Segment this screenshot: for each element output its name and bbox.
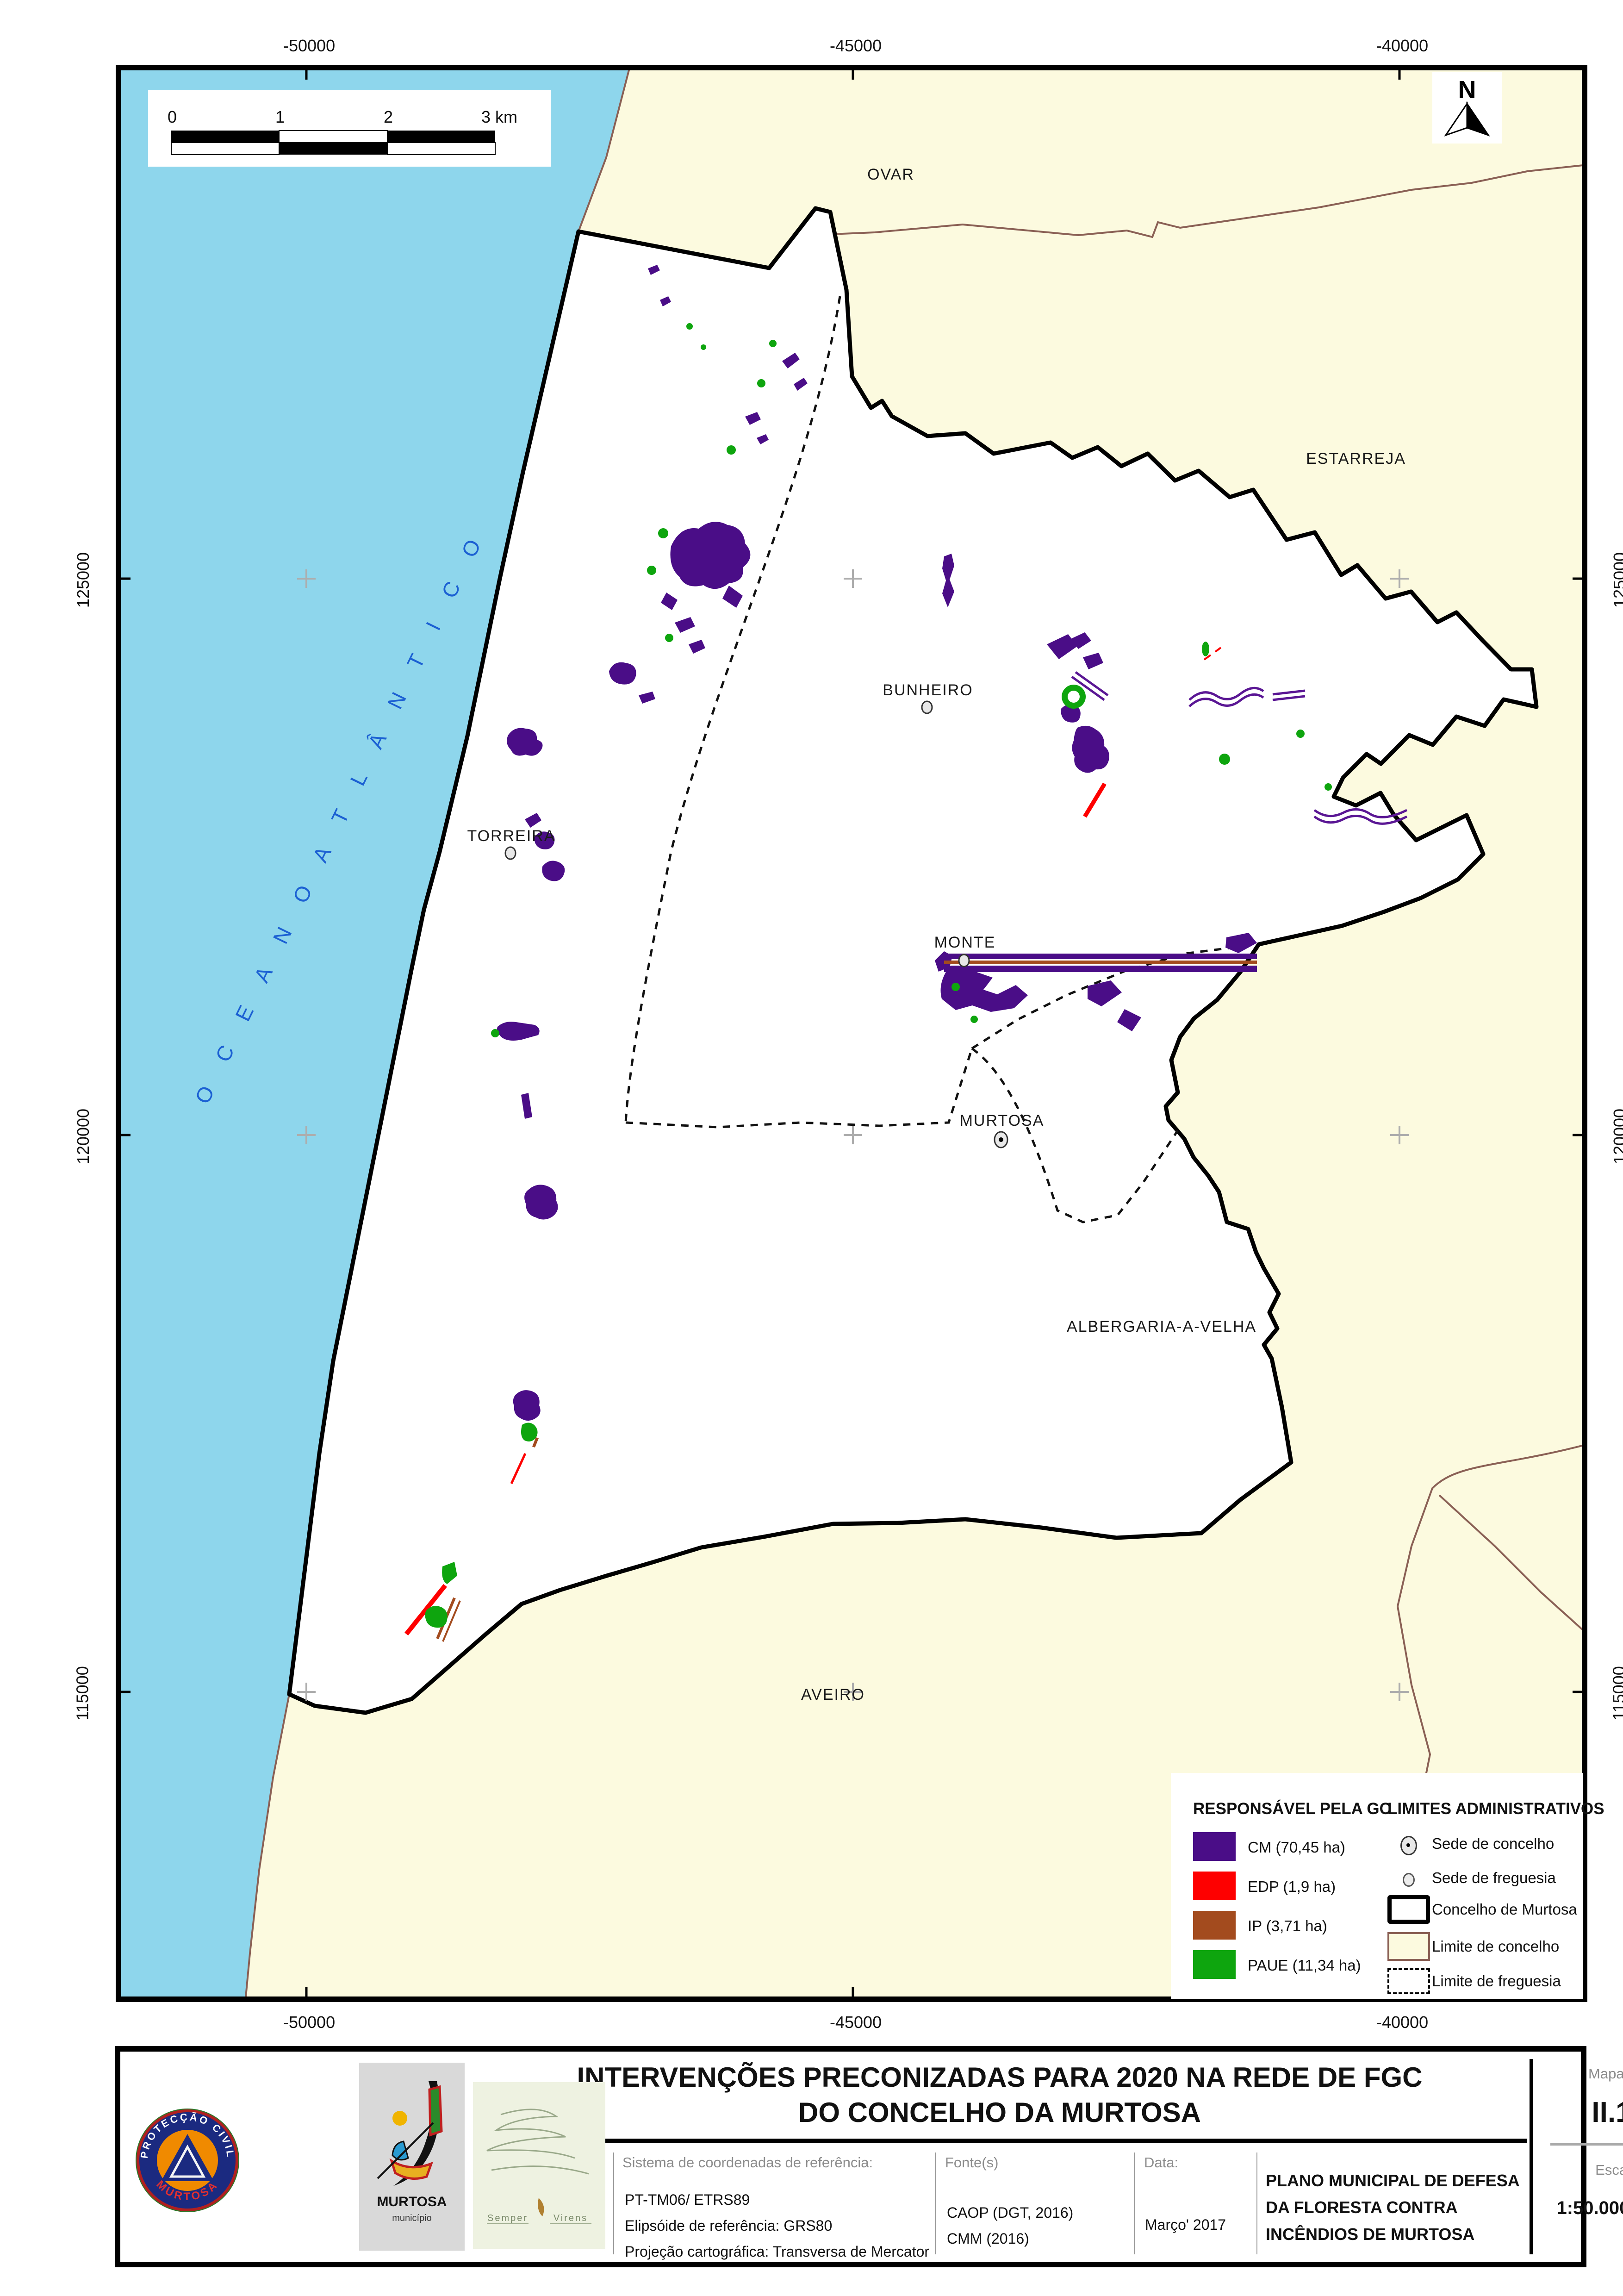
proteccao-civil-logo: PROTECÇÃO CIVIL MURTOSA (134, 2107, 241, 2214)
cm-swatch (1193, 1832, 1236, 1861)
escala-value: 1:50.000 (A3) (1536, 2198, 1623, 2219)
paue-label: PAUE (11,34 ha) (1248, 1957, 1361, 1974)
sede-freguesia-label: Sede de freguesia (1432, 1869, 1556, 1887)
map-title: INTERVENÇÕES PRECONIZADAS PARA 2020 NA R… (472, 2060, 1527, 2130)
sede-freguesia-icon (1403, 1873, 1415, 1887)
plano-municipal-text: PLANO MUNICIPAL DE DEFESA DA FLORESTA CO… (1266, 2167, 1525, 2248)
coord-left-3: 115000 (73, 1666, 93, 1720)
virens-text: Virens (553, 2213, 588, 2223)
coord-right-1: 125000 (1610, 552, 1623, 608)
title-divider (477, 2139, 1527, 2143)
murtosa-logo-name: MURTOSA (377, 2194, 447, 2209)
title-block: PROTECÇÃO CIVIL MURTOSA MURTOSA municípi… (115, 2046, 1586, 2267)
sistema-line1: PT-TM06/ ETRS89 (625, 2187, 750, 2213)
map-canvas: OVAR ESTARREJA BUNHEIRO TORREIRA MONTE M… (116, 65, 1587, 2002)
coord-right-3: 115000 (1610, 1666, 1623, 1720)
semper-text: Semper (487, 2213, 528, 2223)
right-column-rule (1550, 2143, 1623, 2146)
fontes-line1: CAOP (DGT, 2016) (947, 2200, 1073, 2226)
murtosa-municipio-logo: MURTOSA município (359, 2063, 465, 2251)
coord-right-2: 120000 (1610, 1109, 1623, 1164)
semper-virens-logo: Semper Virens (473, 2082, 605, 2249)
map-title-line1: INTERVENÇÕES PRECONIZADAS PARA 2020 NA R… (472, 2060, 1527, 2095)
label-albergaria: ALBERGARIA-A-VELHA (1067, 1318, 1256, 1335)
limite-concelho-icon (1387, 1932, 1430, 1961)
plano-line3: INCÊNDIOS DE MURTOSA (1266, 2221, 1525, 2248)
limite-freguesia-icon (1387, 1968, 1430, 1994)
murtosa-logo-sub: município (392, 2213, 432, 2223)
plano-line1: PLANO MUNICIPAL DE DEFESA (1266, 2167, 1525, 2194)
label-ovar: OVAR (867, 166, 914, 183)
edp-label: EDP (1,9 ha) (1248, 1878, 1336, 1896)
legend-panel: RESPONSÁVEL PELA GC LIMITES ADMINISTRATI… (1171, 1773, 1583, 1999)
right-column-divider (1530, 2059, 1533, 2254)
divider-1 (613, 2152, 614, 2254)
label-bunheiro: BUNHEIRO (883, 681, 973, 699)
scale-tick-3: 3 km (481, 107, 517, 126)
escala-label: Escala: (1536, 2162, 1623, 2178)
coord-top-1: -50000 (283, 36, 335, 56)
coord-bottom-2: -45000 (830, 2013, 882, 2032)
map-title-line2: DO CONCELHO DA MURTOSA (472, 2095, 1527, 2130)
divider-2 (935, 2152, 936, 2254)
label-estarreja: ESTARREJA (1306, 450, 1406, 468)
concelho-murtosa-label: Concelho de Murtosa (1432, 1901, 1577, 1918)
escala-ratio: 1:50.000 (1556, 2198, 1623, 2218)
scale-tick-2: 2 (384, 107, 393, 126)
coord-bottom-3: -40000 (1376, 2013, 1428, 2032)
mapa-num-value: II.11 (1536, 2096, 1623, 2129)
legend-gc-title: RESPONSÁVEL PELA GC (1193, 1800, 1391, 1818)
coord-left-2: 120000 (74, 1109, 93, 1164)
fontes-line2: CMM (2016) (947, 2226, 1029, 2252)
scale-bar: 0 1 2 3 km (148, 90, 551, 167)
label-aveiro: AVEIRO (801, 1686, 865, 1703)
label-monte: MONTE (934, 934, 996, 951)
scale-tick-0: 0 (168, 107, 177, 126)
sistema-label: Sistema de coordenadas de referência: (622, 2154, 873, 2171)
sede-freguesia-monte (959, 955, 969, 967)
label-murtosa: MURTOSA (960, 1112, 1045, 1129)
cm-label: CM (70,45 ha) (1248, 1839, 1345, 1856)
coord-top-2: -45000 (830, 36, 882, 56)
sistema-line2: Elipsóide de referência: GRS80 (625, 2213, 832, 2239)
paue-swatch (1193, 1950, 1236, 1979)
north-label: N (1458, 76, 1476, 104)
label-torreira: TORREIRA (467, 827, 555, 845)
sede-freguesia-torreira (505, 847, 516, 859)
edp-swatch (1193, 1872, 1236, 1900)
concelho-murtosa-icon (1387, 1895, 1430, 1924)
coord-top-3: -40000 (1376, 36, 1428, 56)
ip-swatch (1193, 1911, 1236, 1940)
divider-3 (1134, 2152, 1135, 2254)
ip-label: IP (3,71 ha) (1248, 1917, 1327, 1935)
sede-concelho-icon (1400, 1836, 1417, 1855)
coord-bottom-1: -50000 (283, 2013, 335, 2032)
sede-concelho-label: Sede de concelho (1432, 1835, 1554, 1853)
legend-admin-title: LIMITES ADMINISTRATIVOS (1387, 1800, 1604, 1818)
data-value: Março' 2017 (1145, 2212, 1226, 2238)
fontes-label: Fonte(s) (945, 2154, 998, 2171)
sistema-line3: Projeção cartográfica: Transversa de Mer… (625, 2239, 929, 2265)
mapa-num-label: Mapa n.º: (1536, 2065, 1623, 2082)
divider-4 (1256, 2152, 1257, 2254)
data-label: Data: (1144, 2154, 1178, 2171)
limite-freguesia-label: Limite de freguesia (1432, 1972, 1561, 1990)
north-arrow: N (1432, 72, 1502, 143)
limite-concelho-label: Limite de concelho (1432, 1938, 1559, 1955)
sede-freguesia-bunheiro (922, 701, 932, 713)
scale-tick-1: 1 (275, 107, 285, 126)
plano-line2: DA FLORESTA CONTRA (1266, 2194, 1525, 2221)
coord-left-1: 125000 (74, 552, 93, 608)
